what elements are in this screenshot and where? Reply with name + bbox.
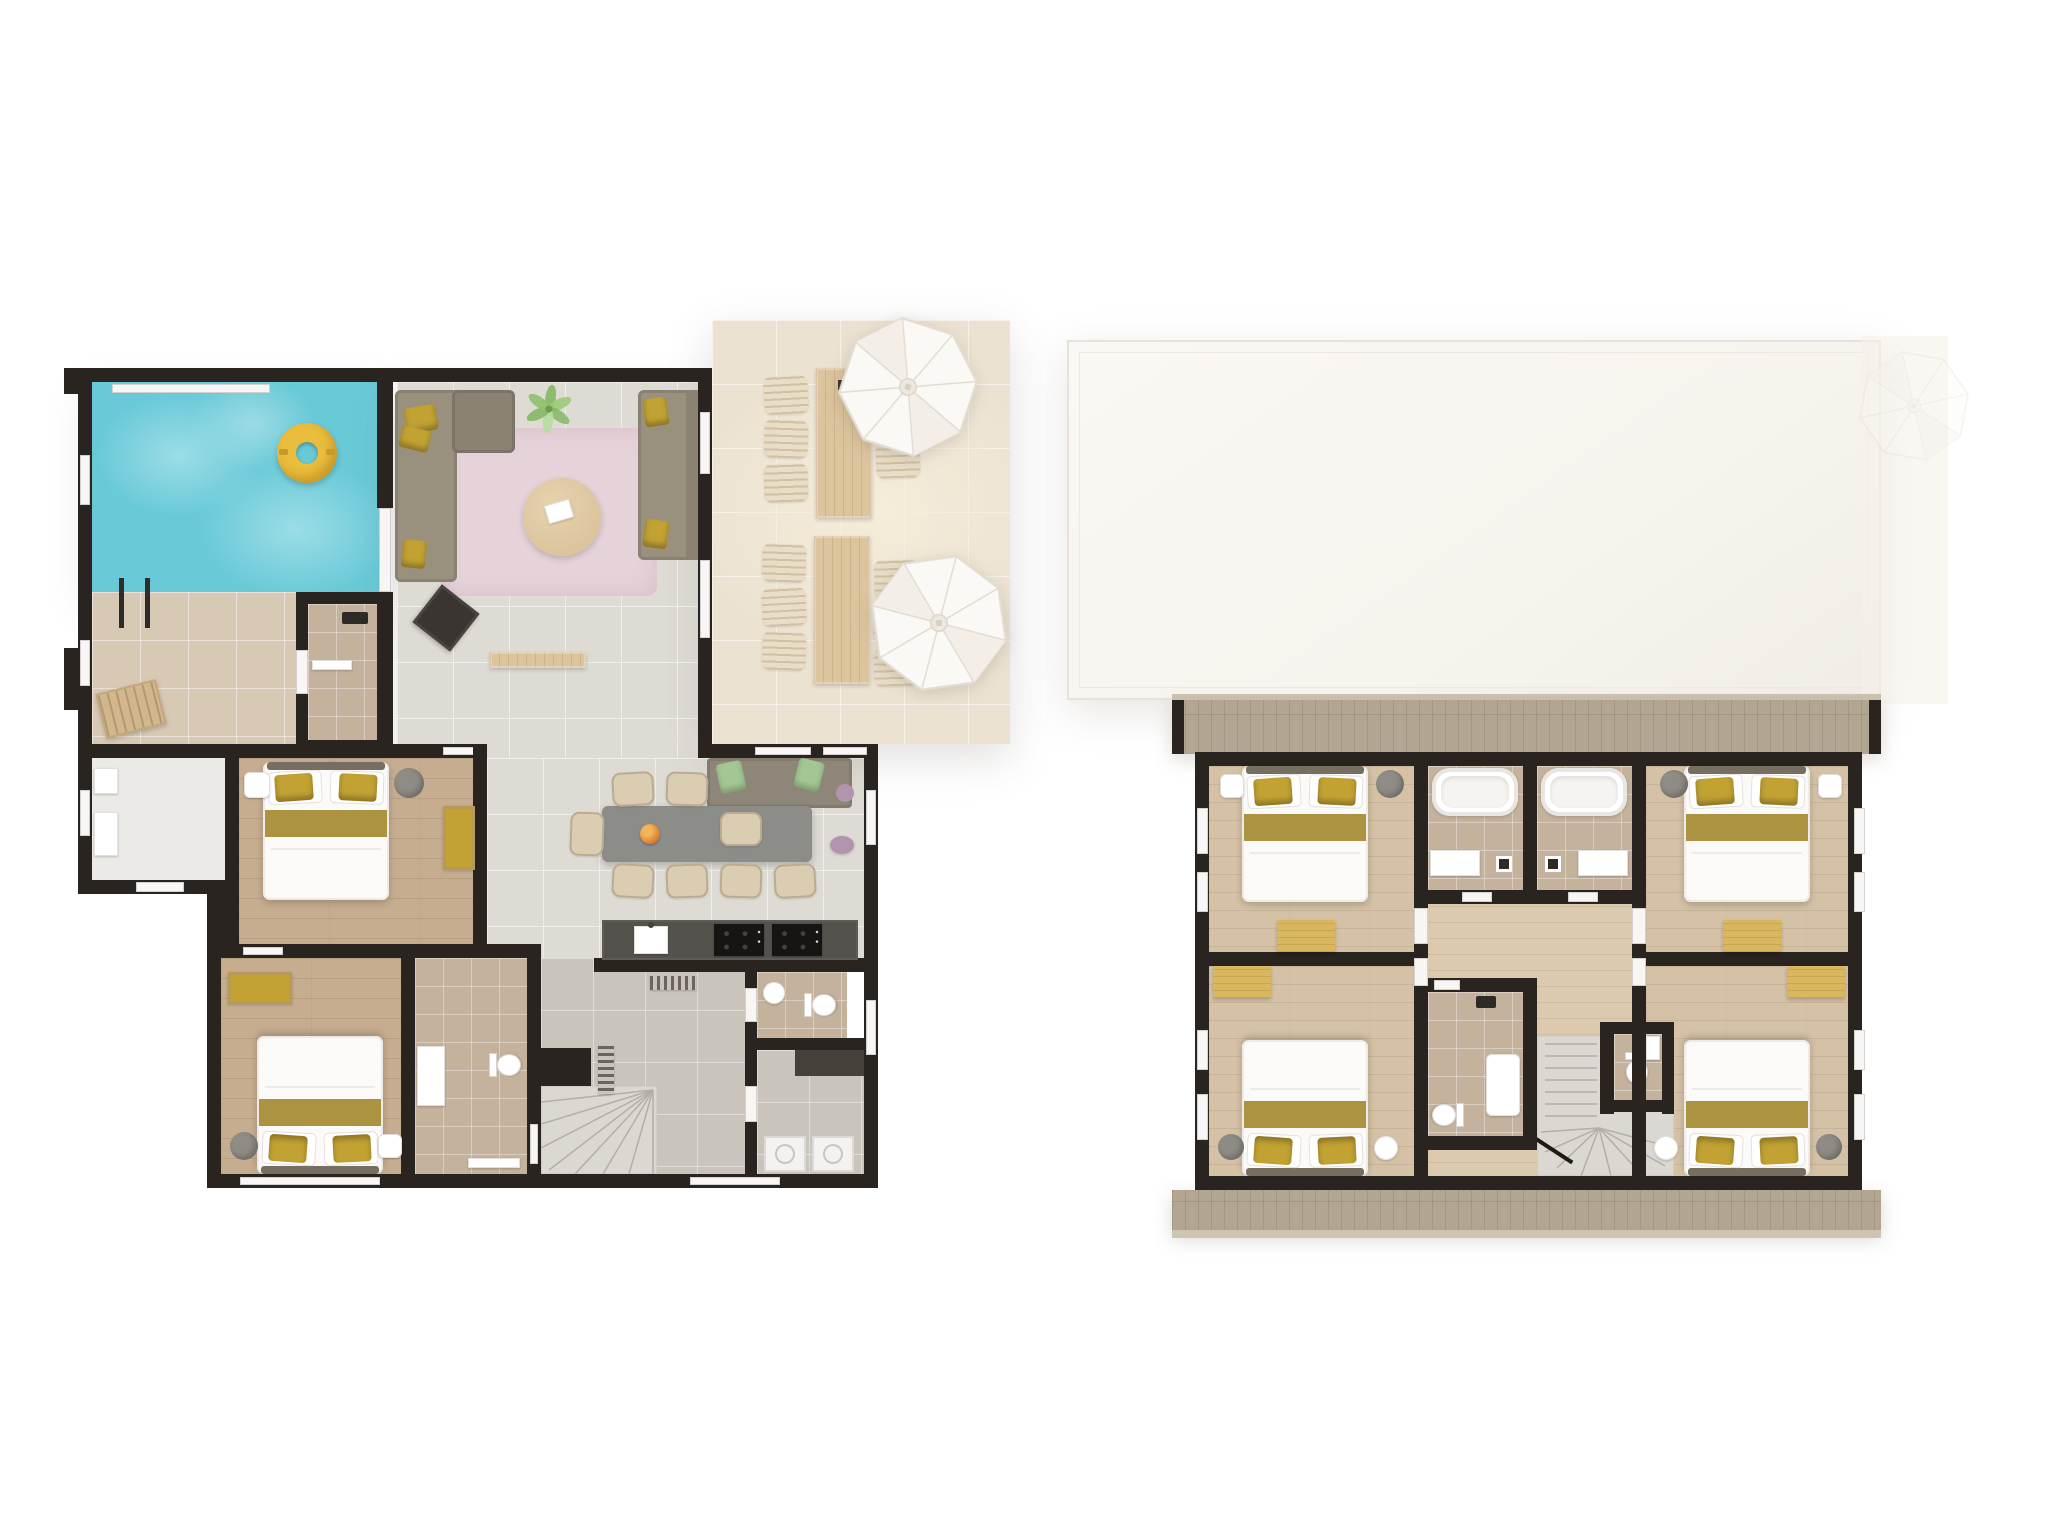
yellow-pillow (1253, 777, 1293, 807)
window (80, 455, 90, 505)
double-bed (1242, 766, 1368, 902)
shower-room-door (1434, 980, 1460, 990)
potted-plant (520, 380, 578, 438)
wall-washbasin (1578, 850, 1628, 876)
wall (1195, 1176, 1862, 1190)
clock-tray (1220, 774, 1244, 798)
swim-ring-handle (326, 449, 335, 455)
wc-door (745, 988, 757, 1022)
cooktop (772, 924, 822, 956)
low-wood-bench (490, 652, 586, 668)
headboard (1246, 766, 1364, 774)
double-bed (1684, 766, 1810, 902)
night-stand (1816, 1134, 1842, 1160)
front-balcony-deck (1172, 700, 1881, 754)
sofa-backrest (686, 390, 698, 560)
bed-runner (1244, 1101, 1366, 1128)
wall (377, 592, 393, 758)
yellow-pillow (1759, 1136, 1798, 1165)
storage-closet (795, 1050, 864, 1076)
toilet-bowl (812, 994, 836, 1016)
yellow-pillow (1253, 1136, 1293, 1166)
cooktop (714, 924, 764, 956)
yellow-cushion (642, 518, 670, 549)
bed-runner (1244, 814, 1366, 841)
wall (1523, 978, 1537, 1150)
night-stand (1376, 770, 1404, 798)
pool-ladder (145, 578, 150, 628)
terrace-chair (763, 463, 808, 503)
window (1197, 1030, 1208, 1070)
dryer (812, 1136, 854, 1172)
balcony-edge (1172, 1230, 1881, 1238)
swim-ring-hole (296, 442, 318, 464)
ghost-parasol (1844, 336, 1983, 475)
duvet-fold (265, 1086, 375, 1088)
window (866, 790, 876, 845)
night-stand (230, 1132, 258, 1160)
entry-shelf (94, 768, 118, 794)
bedroom4-door (1632, 908, 1646, 944)
swim-ring-handle (279, 449, 288, 455)
shower-tray (1486, 1054, 1520, 1116)
wall (473, 744, 487, 958)
glass-sliding-door (379, 508, 391, 592)
floor-mat (650, 976, 696, 990)
shower-room-floor (308, 604, 377, 740)
desk (1277, 920, 1335, 952)
kitchen-sink (634, 926, 668, 954)
terrace-chair (761, 587, 807, 627)
window (1854, 1030, 1865, 1070)
wall-washbasin (1430, 850, 1480, 876)
entry-shelf (94, 812, 118, 856)
window (1854, 872, 1865, 912)
window (80, 640, 90, 686)
window (755, 747, 811, 755)
duvet-fold (1692, 1088, 1802, 1090)
flower-centerpiece (640, 824, 660, 844)
dining-table (602, 806, 812, 862)
first-floor-plan (1024, 0, 2048, 1536)
wall (1428, 1136, 1537, 1150)
swim-ring (277, 423, 337, 483)
pool-ladder (119, 578, 124, 628)
washbasin-cabinet (417, 1046, 445, 1106)
toilet-tank (489, 1053, 497, 1077)
bathroom-door (530, 1124, 538, 1164)
dining-chair (611, 771, 655, 807)
clock-tray (1818, 774, 1842, 798)
duvet-fold (1250, 852, 1360, 854)
wall (1428, 890, 1632, 904)
balcony-post (1869, 700, 1881, 754)
toilet (1430, 1100, 1464, 1130)
bedroom2-door (243, 947, 283, 955)
shower-mat (312, 660, 352, 670)
swimming-pool (92, 382, 383, 592)
terrace-chair (763, 419, 808, 459)
kitchen-faucet (648, 922, 654, 928)
floor-plan-canvas (0, 0, 2048, 1536)
bathroom-a-door (1462, 892, 1492, 902)
desk (1723, 920, 1781, 952)
toilet-tank (804, 993, 812, 1017)
double-bed (1242, 1040, 1368, 1176)
headboard (1688, 766, 1806, 774)
wall (1646, 952, 1848, 966)
duvet-fold (1250, 1088, 1360, 1090)
wall (1209, 952, 1414, 966)
bedroom5-door (1414, 958, 1428, 986)
small-washbasin (1646, 1036, 1660, 1060)
double-bed (257, 1036, 383, 1174)
rear-balcony-deck (1172, 1190, 1881, 1234)
desk (1213, 966, 1271, 998)
night-stand (394, 768, 424, 798)
dining-chair (569, 811, 605, 856)
bed-runner (1686, 814, 1808, 841)
wall (594, 958, 878, 972)
bedroom3-door (1414, 908, 1428, 944)
clock-tray (244, 772, 270, 798)
dining-chair (773, 863, 817, 899)
window (1197, 808, 1208, 854)
flat-roof (1067, 340, 1881, 700)
yellow-pillow (1695, 777, 1735, 807)
wall (401, 958, 415, 1174)
washing-machine (764, 1136, 806, 1172)
yellow-pillow (1317, 777, 1356, 806)
bathtub-inner (1441, 776, 1509, 808)
bathtub-inner (1550, 776, 1618, 808)
shower-room-door (296, 650, 308, 694)
window (1197, 1094, 1208, 1140)
window (700, 560, 710, 638)
yellow-pillow (268, 1134, 308, 1164)
double-bed (263, 762, 389, 900)
wall (377, 368, 393, 508)
headboard (261, 1166, 379, 1174)
bed-runner (1686, 1101, 1808, 1128)
toilet-bowl (1432, 1104, 1456, 1126)
yellow-pillow (1759, 777, 1798, 806)
shower-fixture (1476, 996, 1496, 1008)
window (866, 1000, 876, 1055)
side-table (378, 1134, 402, 1158)
window (1854, 1094, 1865, 1140)
shower-fixture (1496, 856, 1512, 872)
night-stand (1660, 770, 1688, 798)
dining-chair (665, 863, 708, 898)
bench-yellow-cushion (443, 806, 475, 870)
duvet-fold (271, 848, 381, 850)
balcony-post (1172, 700, 1184, 754)
headboard (1246, 1168, 1364, 1176)
yellow-cushion (642, 396, 670, 427)
window (1197, 872, 1208, 912)
purple-pouf (830, 836, 854, 854)
yellow-pillow (1695, 1136, 1735, 1166)
window (690, 1177, 780, 1185)
window (240, 1177, 380, 1185)
wall (225, 758, 239, 894)
terrace-chair (763, 375, 809, 415)
radiator (598, 1046, 614, 1094)
yellow-pillow (338, 773, 377, 802)
window (80, 790, 90, 836)
toilet (804, 990, 838, 1020)
bed-runner (259, 1099, 381, 1126)
dining-chair (611, 863, 655, 899)
toilet-bowl (497, 1054, 521, 1076)
window (1854, 808, 1865, 854)
headboard (1688, 1168, 1806, 1176)
desk (1787, 966, 1845, 998)
shower-fixture (342, 612, 368, 624)
parasol (854, 538, 1023, 707)
bathtub (1541, 768, 1627, 816)
bathroom-b-door (1568, 892, 1598, 902)
window (700, 412, 710, 474)
yellow-pillow (274, 773, 314, 803)
bed-runner (265, 810, 387, 837)
yellow-pillow (332, 1134, 371, 1163)
bath-mat (468, 1158, 520, 1168)
wall (78, 368, 712, 382)
toilet (489, 1050, 523, 1080)
shower-fixture (1545, 856, 1561, 872)
purple-cushion (836, 784, 854, 802)
side-table (1374, 1136, 1398, 1160)
terrace-chair (761, 631, 806, 671)
bench-yellow-cushion (228, 972, 292, 1004)
pool-coping (112, 384, 270, 393)
staircase (541, 1086, 657, 1174)
utility-door (745, 1086, 757, 1122)
sofa-chaise (452, 390, 515, 453)
dining-chair (719, 863, 762, 898)
duvet-fold (1692, 852, 1802, 854)
side-table (1654, 1136, 1678, 1160)
terrace-chair (761, 543, 806, 583)
double-bed (1684, 1040, 1810, 1176)
wall (745, 1038, 864, 1050)
round-washbasin (763, 982, 785, 1004)
appliance-door (823, 1144, 843, 1164)
bathtub (1432, 768, 1518, 816)
wall (207, 958, 221, 1188)
wall (1523, 752, 1537, 904)
wall (296, 592, 390, 604)
dining-chair (665, 771, 708, 806)
yellow-cushion (401, 539, 428, 569)
entry-door (136, 882, 184, 892)
roof-edge-line (1079, 352, 1869, 688)
dining-chair (720, 812, 762, 846)
ground-floor-plan (0, 0, 1024, 1536)
bedroom6-door (1632, 958, 1646, 986)
yellow-pillow (1317, 1136, 1356, 1165)
window (823, 747, 867, 755)
headboard (267, 762, 385, 770)
night-stand (1218, 1134, 1244, 1160)
appliance-door (775, 1144, 795, 1164)
toilet-tank (1456, 1103, 1464, 1127)
